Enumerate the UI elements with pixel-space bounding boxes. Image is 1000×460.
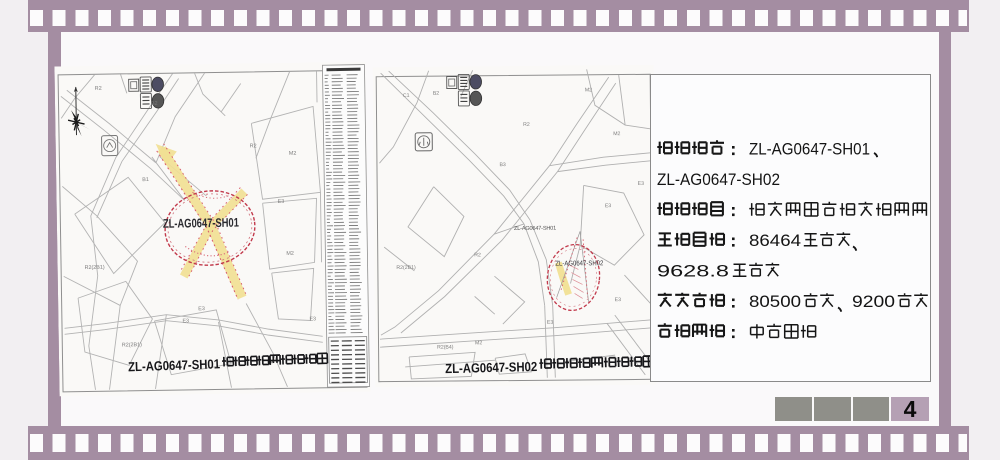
svg-text:ZL-AG0647-SH01: ZL-AG0647-SH01 (128, 356, 220, 374)
svg-text:R2: R2 (250, 143, 257, 149)
svg-text:9200: 9200 (852, 292, 895, 311)
svg-text:E3: E3 (309, 316, 316, 322)
svg-text:R2(2B1): R2(2B1) (122, 342, 142, 348)
svg-text:B2: B2 (433, 91, 440, 97)
svg-text:ZL-AG0647-SH01: ZL-AG0647-SH01 (514, 226, 556, 232)
svg-text:E3: E3 (182, 318, 189, 324)
svg-text:B3: B3 (499, 162, 506, 168)
svg-text:B2: B2 (151, 101, 158, 107)
svg-text:M2: M2 (475, 340, 482, 346)
svg-text:E3: E3 (278, 199, 285, 205)
svg-text:ZL-AG0647-SH02: ZL-AG0647-SH02 (445, 359, 537, 376)
svg-text:ZL-AG0647-SH01: ZL-AG0647-SH01 (163, 216, 239, 231)
svg-text:R2: R2 (523, 122, 530, 128)
svg-text:ZL-AG0647-SH01: ZL-AG0647-SH01 (749, 140, 870, 159)
svg-text:80500: 80500 (749, 292, 801, 311)
svg-text:ZL-AG0647-SH02: ZL-AG0647-SH02 (555, 260, 603, 267)
svg-text:E3: E3 (638, 181, 645, 187)
svg-text:E3: E3 (615, 297, 622, 303)
svg-text:9628.8: 9628.8 (657, 262, 729, 281)
svg-text:R2(B4): R2(B4) (437, 345, 454, 351)
svg-text:B1: B1 (142, 177, 149, 183)
svg-text:M2: M2 (585, 87, 592, 93)
svg-text:ZL-AG0647-SH02: ZL-AG0647-SH02 (657, 170, 780, 189)
svg-text:R2(2B1): R2(2B1) (85, 265, 105, 271)
svg-text:E3: E3 (605, 203, 612, 209)
svg-text:86464: 86464 (749, 231, 801, 250)
svg-text:E3: E3 (547, 320, 554, 326)
svg-text:M2: M2 (613, 131, 620, 137)
svg-text:M2: M2 (289, 151, 297, 157)
svg-text:R2: R2 (95, 86, 102, 92)
svg-text:E3: E3 (198, 306, 205, 312)
svg-text:R2: R2 (474, 252, 481, 258)
svg-text:M2: M2 (286, 251, 294, 257)
svg-text:C1: C1 (403, 93, 410, 99)
svg-text:R2(2B1): R2(2B1) (396, 265, 416, 271)
